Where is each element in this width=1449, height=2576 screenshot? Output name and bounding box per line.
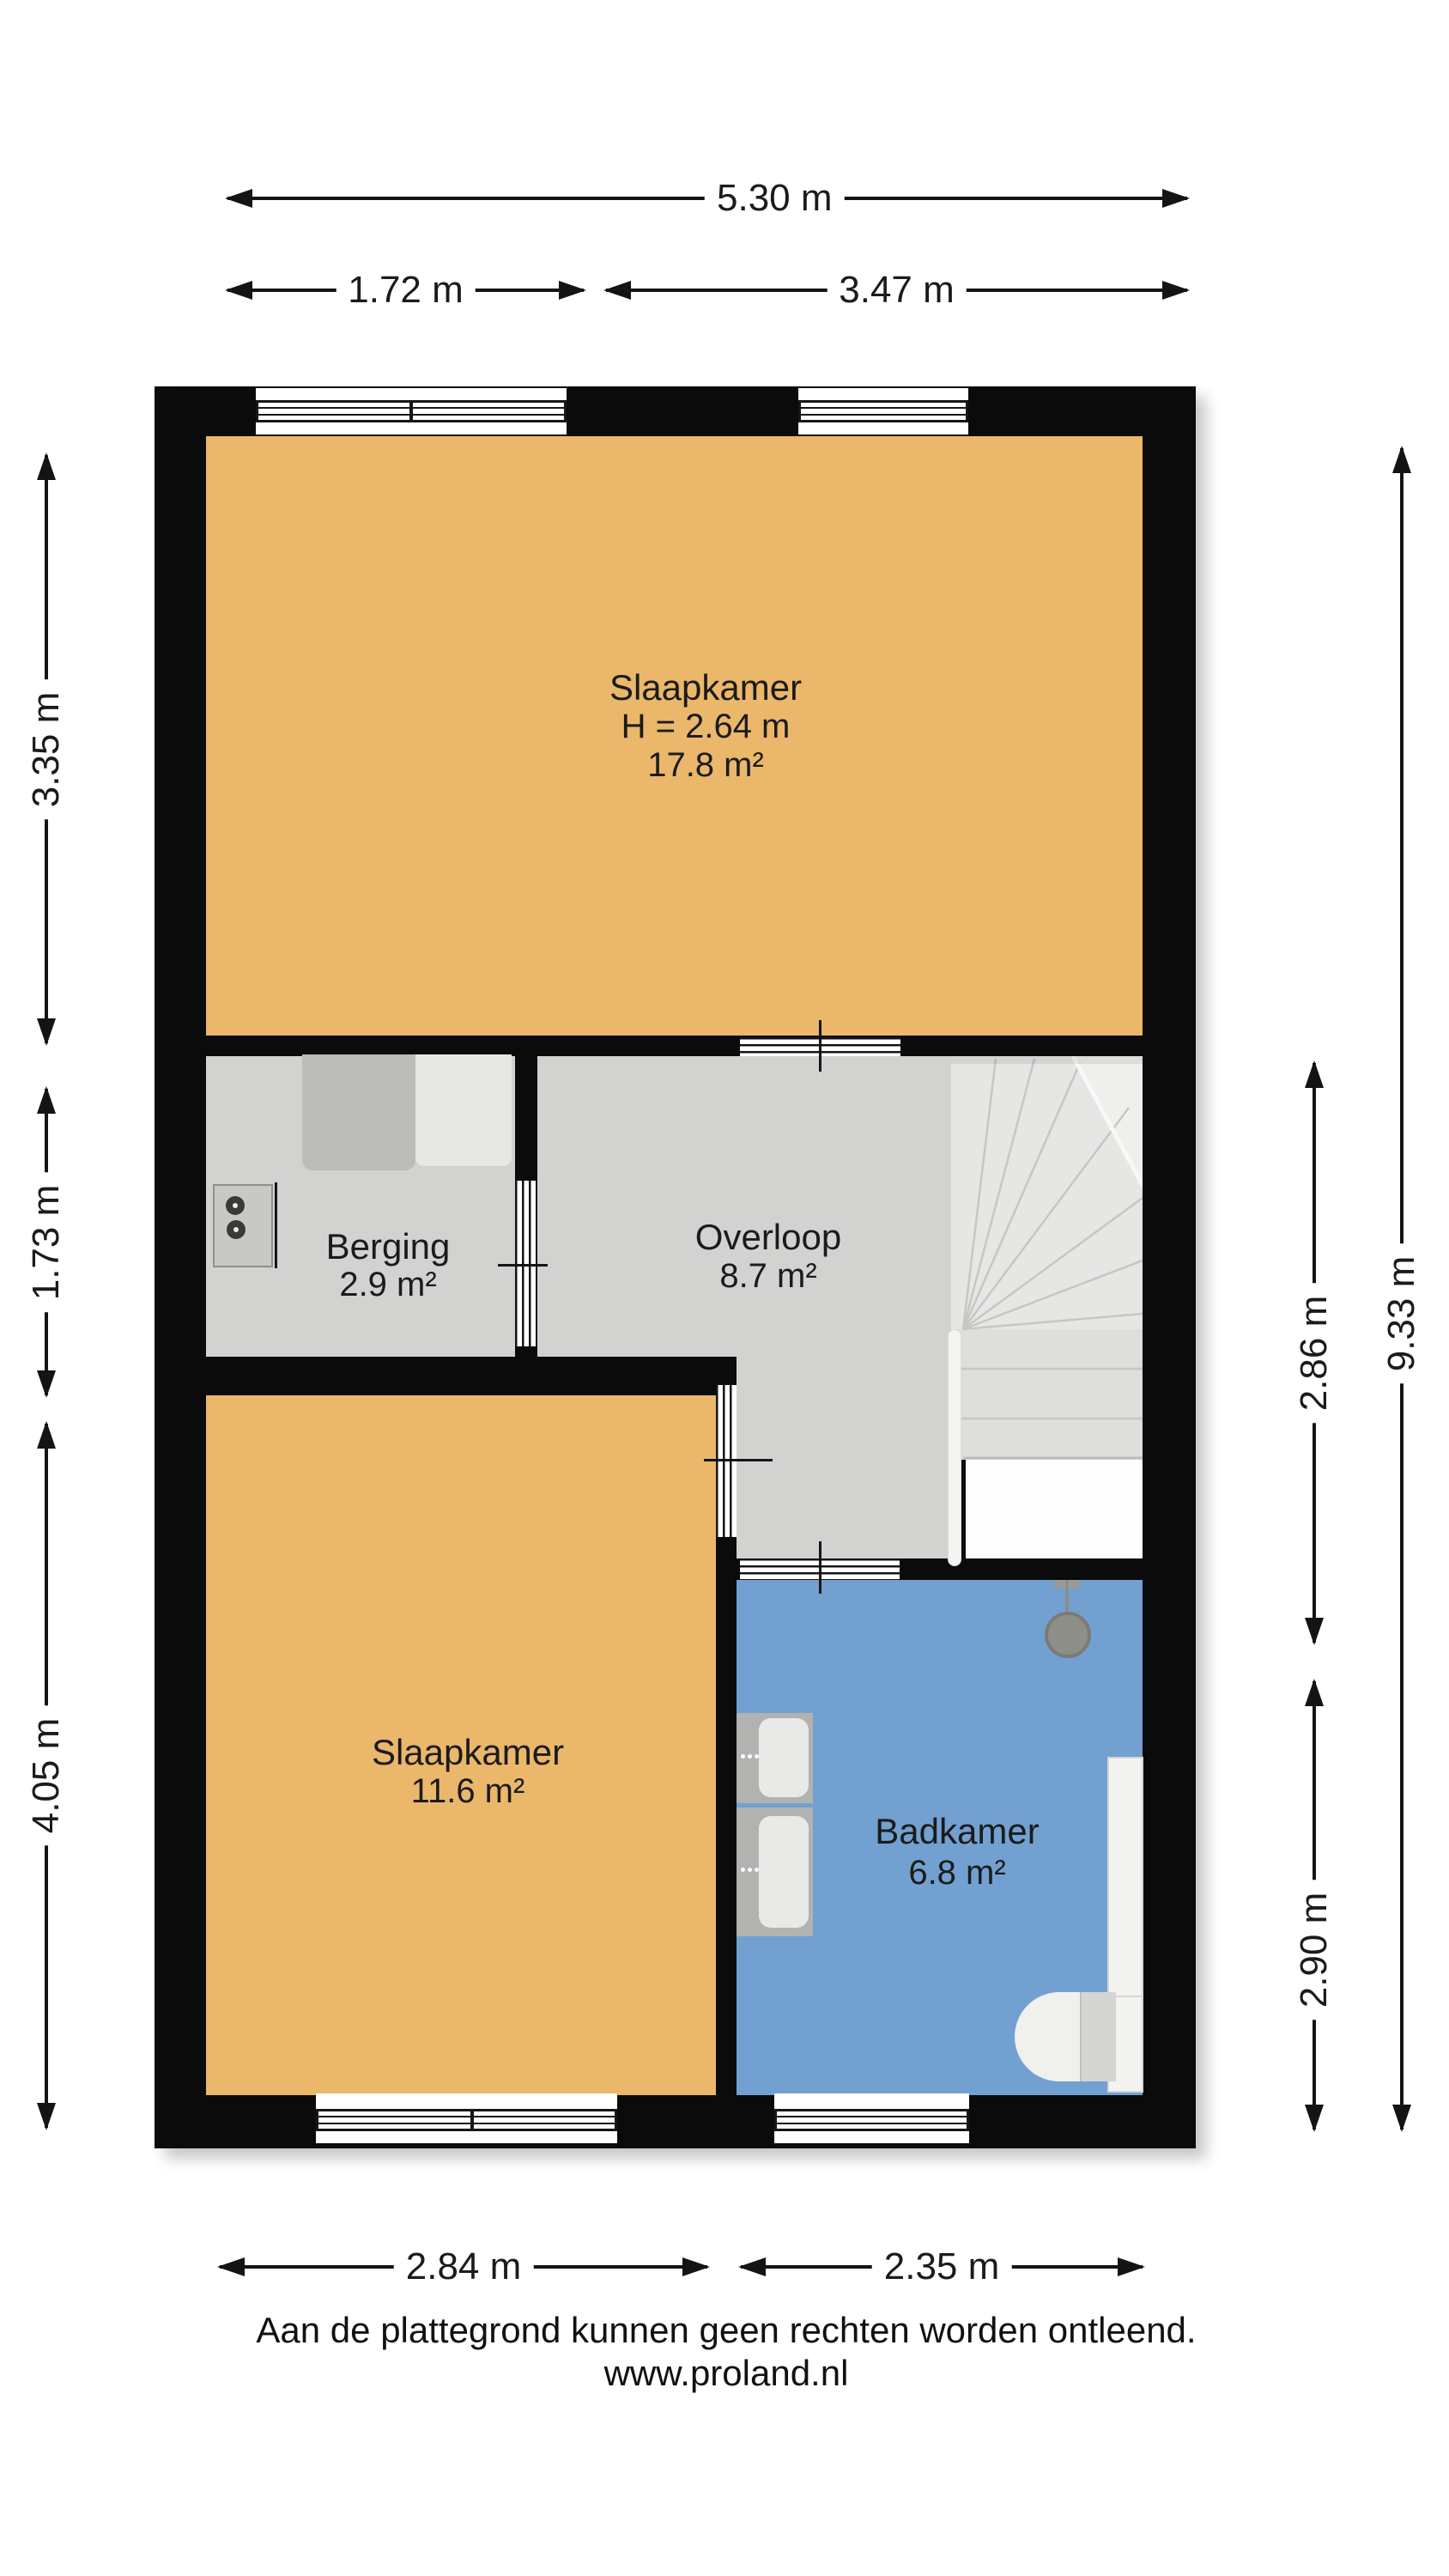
room-area-overloop: 8.7 m² xyxy=(719,1259,816,1293)
room-overloop-upper xyxy=(537,1056,951,1357)
arrow-right-icon xyxy=(559,281,586,300)
window-glazing xyxy=(798,400,968,422)
room-area-slaapkamer-1: 17.8 m² xyxy=(647,748,764,782)
room-area-badkamer: 6.8 m² xyxy=(908,1856,1005,1890)
stairs-icon xyxy=(951,1056,1143,1558)
room-area-berging: 2.9 m² xyxy=(339,1267,436,1302)
sink-faucet xyxy=(741,1868,745,1872)
dimension-label: 2.86 m xyxy=(1293,1283,1336,1423)
arrow-left-icon xyxy=(217,2257,245,2276)
floor-plan: Slaapkamer H = 2.64 m 17.8 m² Berging 2.… xyxy=(155,386,1196,2148)
room-label-overloop: Overloop xyxy=(695,1219,841,1255)
arrow-down-icon xyxy=(37,1018,56,1046)
dimension-right-badkamer: 2.90 m xyxy=(1313,1681,1316,2129)
room-overloop-lower xyxy=(737,1357,951,1558)
arrow-up-icon xyxy=(37,453,56,480)
arrow-right-icon xyxy=(682,2257,710,2276)
dimension-label: 2.84 m xyxy=(394,2245,534,2288)
window-glazing xyxy=(774,2109,969,2131)
room-label-badkamer: Badkamer xyxy=(875,1814,1039,1850)
door-swing-line xyxy=(704,1459,773,1461)
window-divider xyxy=(470,2109,474,2131)
room-label-slaapkamer-2: Slaapkamer xyxy=(372,1735,564,1771)
room-area-slaapkamer-2: 11.6 m² xyxy=(411,1774,525,1808)
dimension-bottom-left: 2.84 m xyxy=(220,2265,707,2269)
dimension-top-total: 5.30 m xyxy=(227,197,1187,200)
door-swing-line xyxy=(498,1264,548,1267)
arrow-left-icon xyxy=(225,189,252,208)
sink-basin xyxy=(759,1718,809,1797)
shower-head-icon xyxy=(1045,1612,1091,1658)
sink-faucet xyxy=(741,1754,745,1759)
arrow-down-icon xyxy=(1305,2105,1324,2132)
arrow-down-icon xyxy=(1392,2105,1411,2132)
dimension-label: 2.35 m xyxy=(872,2245,1012,2288)
dimension-label: 5.30 m xyxy=(705,177,845,220)
arrow-right-icon xyxy=(1162,189,1190,208)
arrow-down-icon xyxy=(37,2103,56,2130)
dimension-right-total: 9.33 m xyxy=(1400,448,1404,2129)
room-height-slaapkamer-1: H = 2.64 m xyxy=(621,709,791,744)
arrow-down-icon xyxy=(1305,1618,1324,1645)
arrow-left-icon xyxy=(603,281,631,300)
dimension-right-overloop: 2.86 m xyxy=(1313,1063,1316,1643)
dimension-label: 3.47 m xyxy=(827,269,967,312)
arrow-up-icon xyxy=(37,1421,56,1449)
wardrobe-icon xyxy=(415,1054,512,1166)
door-swing-line xyxy=(819,1541,822,1594)
arrow-left-icon xyxy=(225,281,252,300)
footer-disclaimer: Aan de plattegrond kunnen geen rechten w… xyxy=(256,2310,1196,2351)
window-divider xyxy=(409,400,413,422)
arrow-down-icon xyxy=(37,1370,56,1398)
arrow-right-icon xyxy=(1118,2257,1145,2276)
room-label-berging: Berging xyxy=(326,1229,451,1265)
door-swing-line xyxy=(819,1020,822,1072)
dimension-label: 3.35 m xyxy=(25,679,68,819)
washer-divider-line xyxy=(275,1182,277,1268)
arrow-up-icon xyxy=(1305,1060,1324,1088)
stair-handrail xyxy=(948,1329,961,1566)
dimension-label: 2.90 m xyxy=(1293,1880,1336,2020)
dimension-left-middle: 1.73 m xyxy=(45,1089,48,1395)
sink-icon xyxy=(737,1807,813,1936)
arrow-up-icon xyxy=(1392,446,1411,473)
dimension-top-left: 1.72 m xyxy=(227,289,584,292)
dimension-top-right: 3.47 m xyxy=(606,289,1187,292)
washer-knob xyxy=(227,1220,246,1239)
dimension-label: 9.33 m xyxy=(1380,1244,1423,1384)
arrow-up-icon xyxy=(1305,1679,1324,1706)
footer-website: www.proland.nl xyxy=(604,2353,849,2394)
window-glazing xyxy=(316,2109,617,2131)
dimension-label: 4.05 m xyxy=(25,1706,68,1846)
floor-plan-page: Slaapkamer H = 2.64 m 17.8 m² Berging 2.… xyxy=(0,0,1449,2576)
dimension-left-top: 3.35 m xyxy=(45,455,48,1043)
dimension-bottom-right: 2.35 m xyxy=(741,2265,1143,2269)
wardrobe-icon xyxy=(302,1054,415,1170)
washing-machine-icon xyxy=(213,1184,273,1267)
sink-basin xyxy=(759,1816,809,1928)
washer-knob xyxy=(226,1196,245,1215)
sink-icon xyxy=(737,1713,813,1803)
arrow-up-icon xyxy=(37,1086,56,1114)
toilet-cistern xyxy=(1080,1992,1116,2081)
dimension-label: 1.72 m xyxy=(336,269,476,312)
dimension-label: 1.73 m xyxy=(25,1172,68,1312)
room-label-slaapkamer-1: Slaapkamer xyxy=(609,670,802,706)
arrow-right-icon xyxy=(1162,281,1190,300)
dimension-left-bottom: 4.05 m xyxy=(45,1424,48,2128)
arrow-left-icon xyxy=(738,2257,766,2276)
